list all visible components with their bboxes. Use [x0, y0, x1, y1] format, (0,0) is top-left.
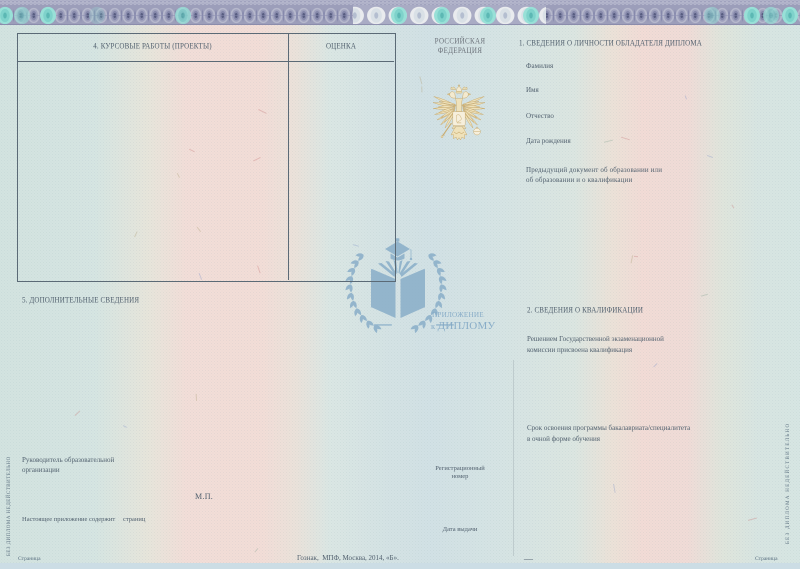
svg-text:к ДИПЛОМУ: к ДИПЛОМУ — [431, 320, 495, 332]
svg-text:ПРИЛОЖЕНИЕ: ПРИЛОЖЕНИЕ — [432, 311, 484, 319]
